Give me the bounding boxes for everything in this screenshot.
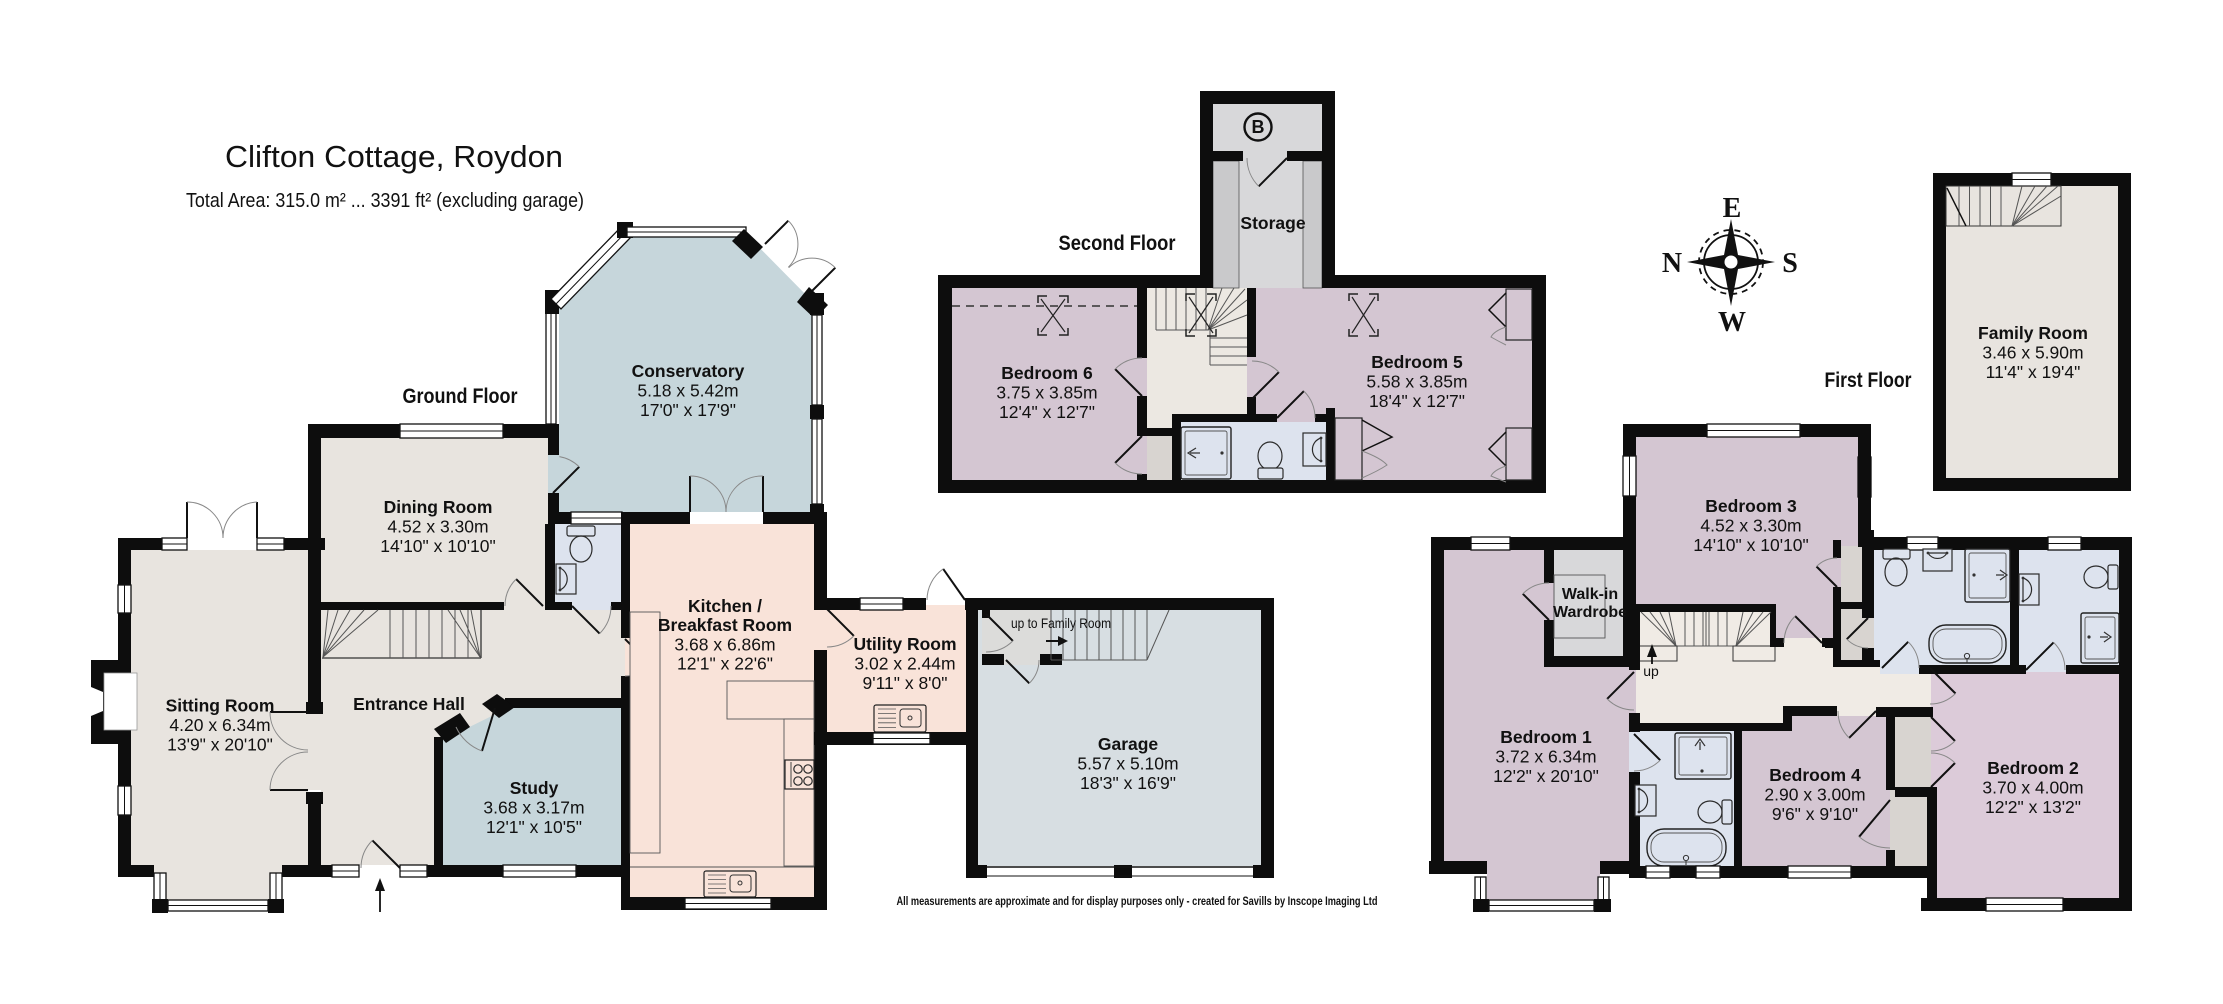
svg-text:3.70 x 4.00m: 3.70 x 4.00m [1982,778,2083,798]
svg-text:Clifton Cottage, Roydon: Clifton Cottage, Roydon [225,139,563,174]
svg-text:Bedroom 3: Bedroom 3 [1705,496,1797,516]
svg-text:Dining Room: Dining Room [384,497,493,517]
svg-text:E: E [1723,193,1742,224]
svg-text:N: N [1662,248,1682,279]
svg-text:W: W [1718,307,1746,338]
svg-text:12'1" x 10'5": 12'1" x 10'5" [486,817,582,837]
svg-text:B: B [1252,117,1265,137]
svg-text:up to Family Room: up to Family Room [1011,615,1111,631]
svg-text:3.75 x 3.85m: 3.75 x 3.85m [996,383,1097,403]
svg-text:3.68 x 6.86m: 3.68 x 6.86m [674,635,775,655]
svg-text:First Floor: First Floor [1825,369,1912,392]
svg-text:9'11" x 8'0": 9'11" x 8'0" [863,673,948,693]
svg-text:14'10" x 10'10": 14'10" x 10'10" [380,536,495,556]
svg-text:Conservatory: Conservatory [632,361,745,381]
svg-text:Total Area: 315.0 m² ... 3391: Total Area: 315.0 m² ... 3391 ft² (exclu… [186,190,584,212]
svg-text:18'4" x 12'7": 18'4" x 12'7" [1369,391,1465,411]
svg-text:Walk-in: Walk-in [1562,586,1618,603]
svg-text:3.46 x 5.90m: 3.46 x 5.90m [1982,343,2083,363]
svg-text:4.52 x 3.30m: 4.52 x 3.30m [1700,516,1801,536]
svg-text:4.20 x 6.34m: 4.20 x 6.34m [169,715,270,735]
svg-text:Family Room: Family Room [1978,323,2088,343]
svg-text:Breakfast Room: Breakfast Room [658,615,792,635]
svg-text:12'2" x 20'10": 12'2" x 20'10" [1493,766,1599,786]
svg-text:12'1" x 22'6": 12'1" x 22'6" [677,654,773,674]
svg-text:Bedroom 2: Bedroom 2 [1987,758,2079,778]
svg-text:All measurements are approxima: All measurements are approximate and for… [897,894,1378,908]
svg-text:11'4" x 19'4": 11'4" x 19'4" [1986,362,2081,382]
svg-text:9'6" x 9'10": 9'6" x 9'10" [1772,804,1858,824]
svg-text:up: up [1643,663,1659,679]
svg-text:Bedroom 6: Bedroom 6 [1001,363,1093,383]
svg-text:13'9" x 20'10": 13'9" x 20'10" [167,735,273,755]
svg-text:5.57 x 5.10m: 5.57 x 5.10m [1077,754,1178,774]
svg-text:Study: Study [510,778,559,798]
svg-text:S: S [1782,248,1798,279]
svg-text:5.18 x 5.42m: 5.18 x 5.42m [637,381,738,401]
svg-text:3.68 x 3.17m: 3.68 x 3.17m [483,798,584,818]
svg-text:Bedroom 1: Bedroom 1 [1500,727,1592,747]
svg-text:14'10" x 10'10": 14'10" x 10'10" [1693,535,1808,555]
svg-text:Bedroom 5: Bedroom 5 [1371,352,1463,372]
svg-text:12'2" x 13'2": 12'2" x 13'2" [1985,797,2081,817]
svg-text:Kitchen /: Kitchen / [688,596,762,616]
svg-text:Storage: Storage [1240,213,1305,233]
svg-text:5.58 x 3.85m: 5.58 x 3.85m [1366,372,1467,392]
svg-text:Wardrobe: Wardrobe [1553,604,1627,621]
svg-text:Ground Floor: Ground Floor [403,385,518,408]
svg-text:3.02 x 2.44m: 3.02 x 2.44m [854,654,955,674]
svg-text:2.90 x 3.00m: 2.90 x 3.00m [1764,785,1865,805]
svg-text:Utility Room: Utility Room [853,634,956,654]
svg-text:Entrance Hall: Entrance Hall [353,694,465,714]
svg-text:Sitting Room: Sitting Room [166,696,275,716]
svg-text:3.72 x 6.34m: 3.72 x 6.34m [1495,747,1596,767]
svg-text:Second Floor: Second Floor [1059,232,1176,255]
svg-text:Garage: Garage [1098,734,1159,754]
svg-text:17'0" x 17'9": 17'0" x 17'9" [640,400,736,420]
svg-text:12'4" x 12'7": 12'4" x 12'7" [999,402,1095,422]
svg-text:Bedroom 4: Bedroom 4 [1769,765,1861,785]
svg-text:18'3" x 16'9": 18'3" x 16'9" [1080,773,1176,793]
svg-text:4.52 x 3.30m: 4.52 x 3.30m [387,517,488,537]
